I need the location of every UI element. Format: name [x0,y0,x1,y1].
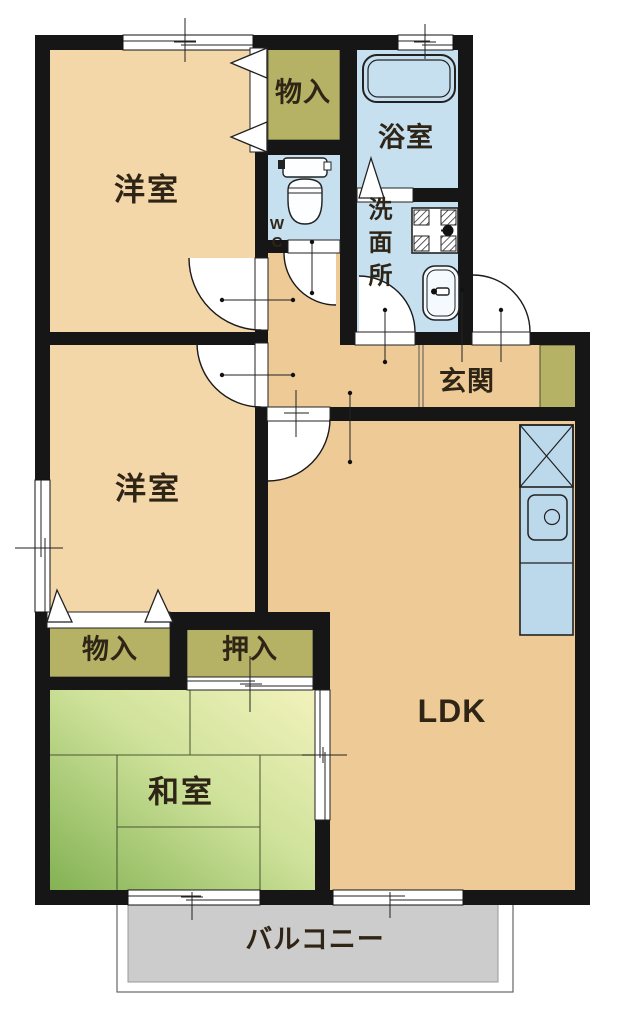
room-label-tatami-room: 和室 [148,777,214,808]
room-label-western-room-1: 洋室 [114,175,180,206]
shoe-cabinet [540,345,577,408]
room-label-bathroom: 浴室 [378,125,434,152]
kitchen-counter [520,425,573,635]
room-label-storage-top: 物入 [275,80,331,107]
washing-machine-icon [412,208,458,253]
room-label-storage-bottom: 物入 [82,637,138,664]
room-label-washroom: 洗面所 [365,197,389,296]
room-label-entrance: 玄関 [439,369,495,396]
washbasin-icon [423,266,459,320]
floor-plan: 洋室 物入 浴室 WC 洗面所 玄関 洋室 物入 押入 和室 LDK バルコニー [0,0,623,1024]
window-left-room2 [35,480,50,612]
room-label-ldk: LDK [418,695,487,727]
ldk-door-leaf [267,407,330,421]
room1-door-leaf [255,258,268,330]
room-label-balcony: バルコニー [245,927,384,954]
room-label-wc: WC [270,216,285,252]
floor-plan-drawing [0,0,623,1024]
room-label-western-room-2: 洋室 [115,474,181,505]
room-label-oshiire: 押入 [222,637,278,664]
window-bottom-ldk [333,890,463,905]
